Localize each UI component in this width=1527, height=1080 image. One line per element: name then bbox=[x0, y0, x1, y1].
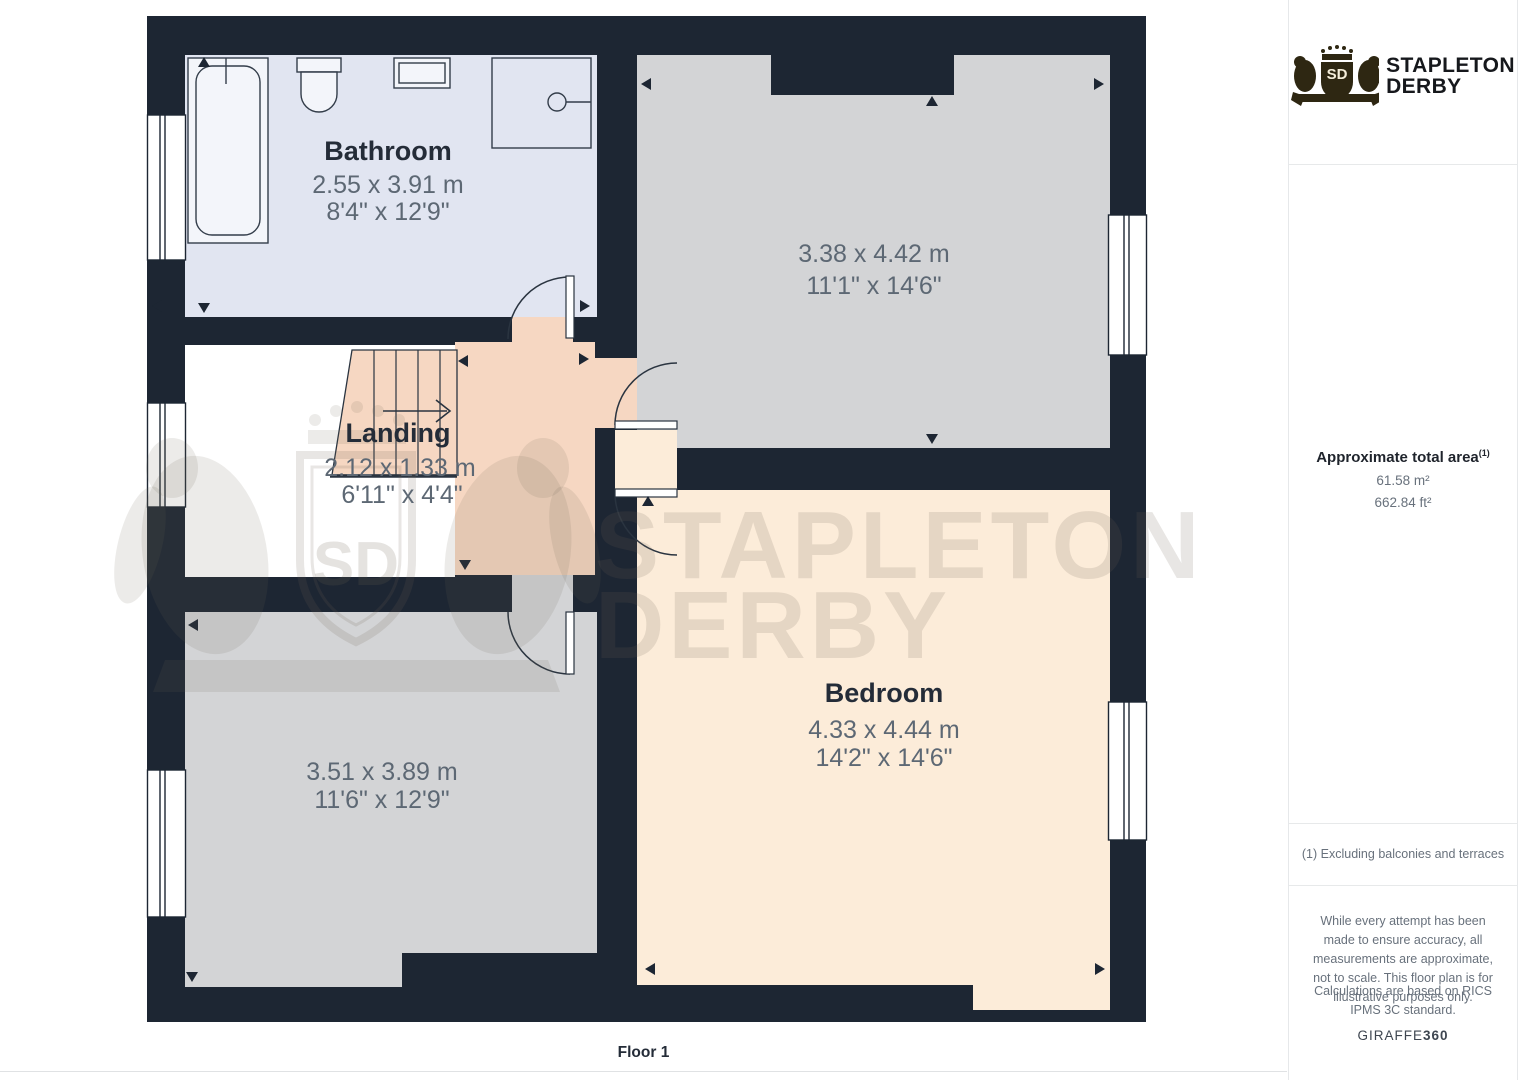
total-area-metric: 61.58 m² bbox=[1289, 473, 1517, 488]
bedroom-doorway bbox=[615, 430, 677, 490]
sidebar-divider-top bbox=[1289, 164, 1517, 165]
agency-crest-icon: SD bbox=[1291, 42, 1379, 110]
agency-name: STAPLETON DERBY bbox=[1386, 55, 1515, 97]
bathtub-icon bbox=[188, 58, 268, 243]
crest-initials: SD bbox=[1327, 66, 1348, 83]
total-area-imperial: 662.84 ft² bbox=[1289, 495, 1517, 510]
window-left-bathroom bbox=[148, 115, 186, 260]
bathroom-dim-m: 2.55 x 3.91 m bbox=[312, 171, 463, 199]
bathroom-door-leaf bbox=[566, 276, 574, 338]
area-footnote: (1) Excluding balconies and terraces bbox=[1299, 847, 1507, 861]
bedroom-dim-ft: 14'2" x 14'6" bbox=[815, 744, 952, 772]
agency-logo: SD STAPLETON DERBY bbox=[1289, 42, 1517, 110]
toilet-cistern-icon bbox=[297, 58, 341, 72]
landing-label: Landing bbox=[346, 418, 451, 448]
sidebar-divider-middle bbox=[1289, 823, 1517, 824]
agency-name-line1: STAPLETON bbox=[1386, 55, 1515, 76]
bottom-left-dim-ft: 11'6" x 12'9" bbox=[314, 786, 449, 814]
bedroom-dim-m: 4.33 x 4.44 m bbox=[808, 716, 959, 744]
total-area-block: Approximate total area(1) 61.58 m² 662.8… bbox=[1289, 448, 1517, 510]
window-right-top-room bbox=[1109, 215, 1147, 355]
top-right-door-leaf bbox=[615, 421, 677, 429]
watermark-banner bbox=[153, 660, 560, 692]
top-right-dim-m: 3.38 x 4.42 m bbox=[798, 240, 949, 268]
agency-name-line2: DERBY bbox=[1386, 76, 1515, 97]
svg-text:DERBY: DERBY bbox=[595, 572, 951, 679]
landing-dim-m: 2.12 x 1.33 m bbox=[324, 454, 475, 482]
area-footnote-marker: (1) bbox=[1479, 448, 1490, 458]
bathroom-dim-ft: 8'4" x 12'9" bbox=[326, 198, 449, 226]
bottom-left-dim-m: 3.51 x 3.89 m bbox=[306, 758, 457, 786]
toilet-bowl-icon bbox=[301, 72, 337, 112]
sidebar-divider-bottom bbox=[1289, 885, 1517, 886]
bedroom-label: Bedroom bbox=[825, 678, 944, 708]
info-sidebar: SD STAPLETON DERBY Approximate total are… bbox=[1288, 0, 1518, 1080]
window-left-bottom-room bbox=[148, 770, 186, 917]
top-right-dim-ft: 11'1" x 14'6" bbox=[806, 272, 941, 300]
chimney-breast bbox=[771, 55, 954, 95]
total-area-title: Approximate total area(1) bbox=[1289, 448, 1517, 466]
watermark-initials: SD bbox=[313, 530, 399, 599]
floor-label: Floor 1 bbox=[0, 1044, 1287, 1062]
bathroom-label: Bathroom bbox=[324, 136, 452, 166]
calculation-note: Calculations are based on RICS IPMS 3C s… bbox=[1305, 982, 1501, 1020]
landing-dim-ft: 6'11" x 4'4" bbox=[341, 481, 462, 509]
page-bottom-rule bbox=[0, 1071, 1287, 1072]
bottom-left-door-leaf bbox=[566, 612, 574, 674]
window-right-bedroom bbox=[1109, 702, 1147, 840]
giraffe360-brand: GIRAFFE360 bbox=[1289, 1028, 1517, 1043]
